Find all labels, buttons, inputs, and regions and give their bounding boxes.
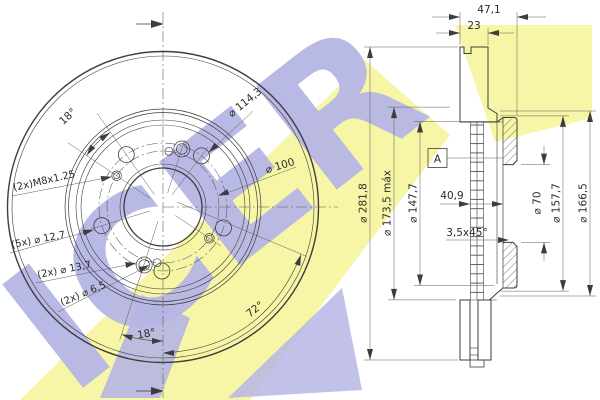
datum-a-label: A <box>434 154 442 166</box>
outer-dia-label: ⌀ 281,8 <box>358 183 370 223</box>
bore-dia-label: ⌀ 70 <box>532 191 544 214</box>
hat-depth-label: 23 <box>467 20 480 32</box>
chamfer-label: 3,5x45° <box>446 227 488 239</box>
vent-inner-dia-label: ⌀ 173,5 máx <box>382 170 394 236</box>
brake-disc-technical-drawing: ICER <box>0 0 600 400</box>
pilot-dia-label: ⌀ 157,7 <box>551 183 563 223</box>
total-width-label: 47,1 <box>477 4 500 16</box>
drawing-canvas: ICER <box>0 0 600 400</box>
flange-dia-label: ⌀ 147,7 <box>408 183 420 223</box>
hat-inner-width-label: 40,9 <box>440 190 463 202</box>
face-dia-label: ⌀ 166,5 <box>578 183 590 223</box>
